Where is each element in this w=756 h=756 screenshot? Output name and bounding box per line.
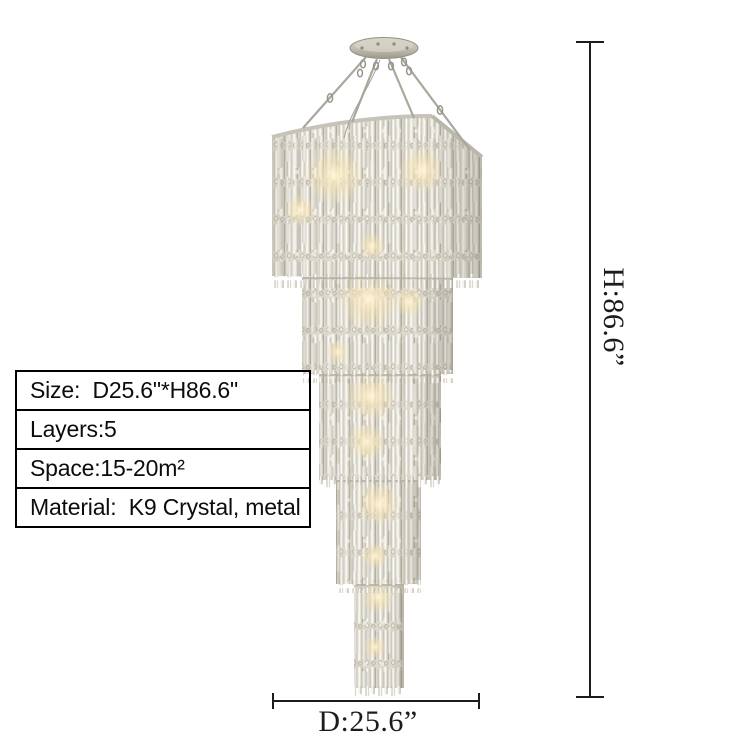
chandelier-tier-4 [336,480,421,584]
chandelier-tier-3 [319,370,441,480]
tier-2-fringe [302,370,453,383]
chandelier-tier-5 [354,580,404,688]
ceiling-canopy [350,38,418,59]
tier-4-fringe [336,580,421,593]
spec-row-space: Space:15-20m² [17,448,309,487]
spec-row-material: Material: K9 Crystal, metal [17,487,309,526]
spec-row-layers: Layers:5 [17,409,309,448]
height-dimension-label: H:86.6” [596,252,630,382]
spec-table: Size: D25.6"*H86.6" Layers:5 Space:15-20… [15,370,311,528]
tier-5-fringe [354,684,404,696]
diameter-dimension-label: D:25.6” [288,705,448,739]
spec-row-size: Size: D25.6"*H86.6" [17,372,309,409]
tier-1-fringe [272,274,482,288]
tier-3-fringe [319,476,441,489]
chandelier-tier-1 [272,116,482,278]
product-image: H:86.6” D:25.6” Size: D25.6"*H86.6" Laye… [0,0,756,756]
